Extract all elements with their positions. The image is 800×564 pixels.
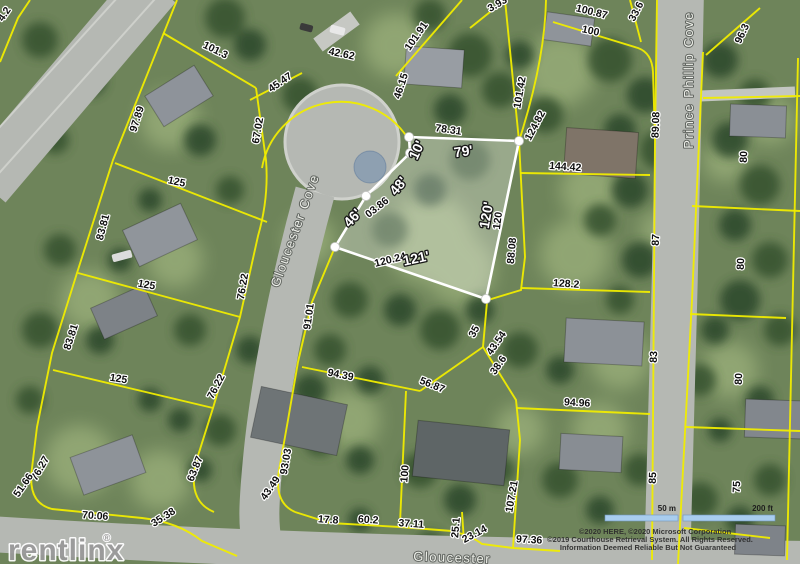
dimension-label: 17.8 [318,513,339,526]
dimension-label: 128.2 [553,277,580,291]
dimension-label: 80 [733,373,745,385]
dimension-label: 97.36 [516,533,543,546]
scale-bar-metric [605,515,678,521]
dimension-label: 89.08 [650,111,663,138]
dimension-label: 60.2 [358,513,379,526]
dimension-label: 144.42 [549,160,582,174]
parcel-dimension-label: 79' [453,142,474,160]
copyright: ©2020 HERE, ©2020 Microsoft Corporation … [547,527,753,552]
map-pin-dot [354,151,386,183]
dimension-label: 85 [647,472,659,484]
road-prince-phillip-cove [667,0,681,564]
dimension-label: 94.96 [564,396,591,409]
scale-bar-imperial [683,515,775,521]
watermark: rentlinx ® [8,533,124,564]
dimension-label: 70.06 [82,509,109,523]
street-label: Prince Phillip Cove [681,11,696,149]
dimension-label: 83 [648,351,660,363]
dimension-label: 87 [650,234,662,246]
scale-metric-label: 50 m [658,504,676,513]
registered-trademark-icon: ® [103,533,111,544]
aerial-parcel-map: 4.2101.397.8967.0245.4742.62101.9146.153… [0,0,800,564]
dimension-label: 88.08 [505,237,519,264]
scale-imperial-label: 200 ft [752,504,773,513]
copyright-line-3: Information Deemed Reliable But Not Guar… [560,543,737,552]
dimension-label: 100 [398,464,411,483]
dimension-label: 80 [735,258,747,270]
listing-map: 4.2101.397.8967.0245.4742.62101.9146.153… [0,0,800,564]
dimension-label: 80 [738,151,750,163]
dimension-label: 37.11 [398,517,425,531]
dimension-label: 75 [731,481,743,493]
street-label: Gloucester [413,549,491,564]
